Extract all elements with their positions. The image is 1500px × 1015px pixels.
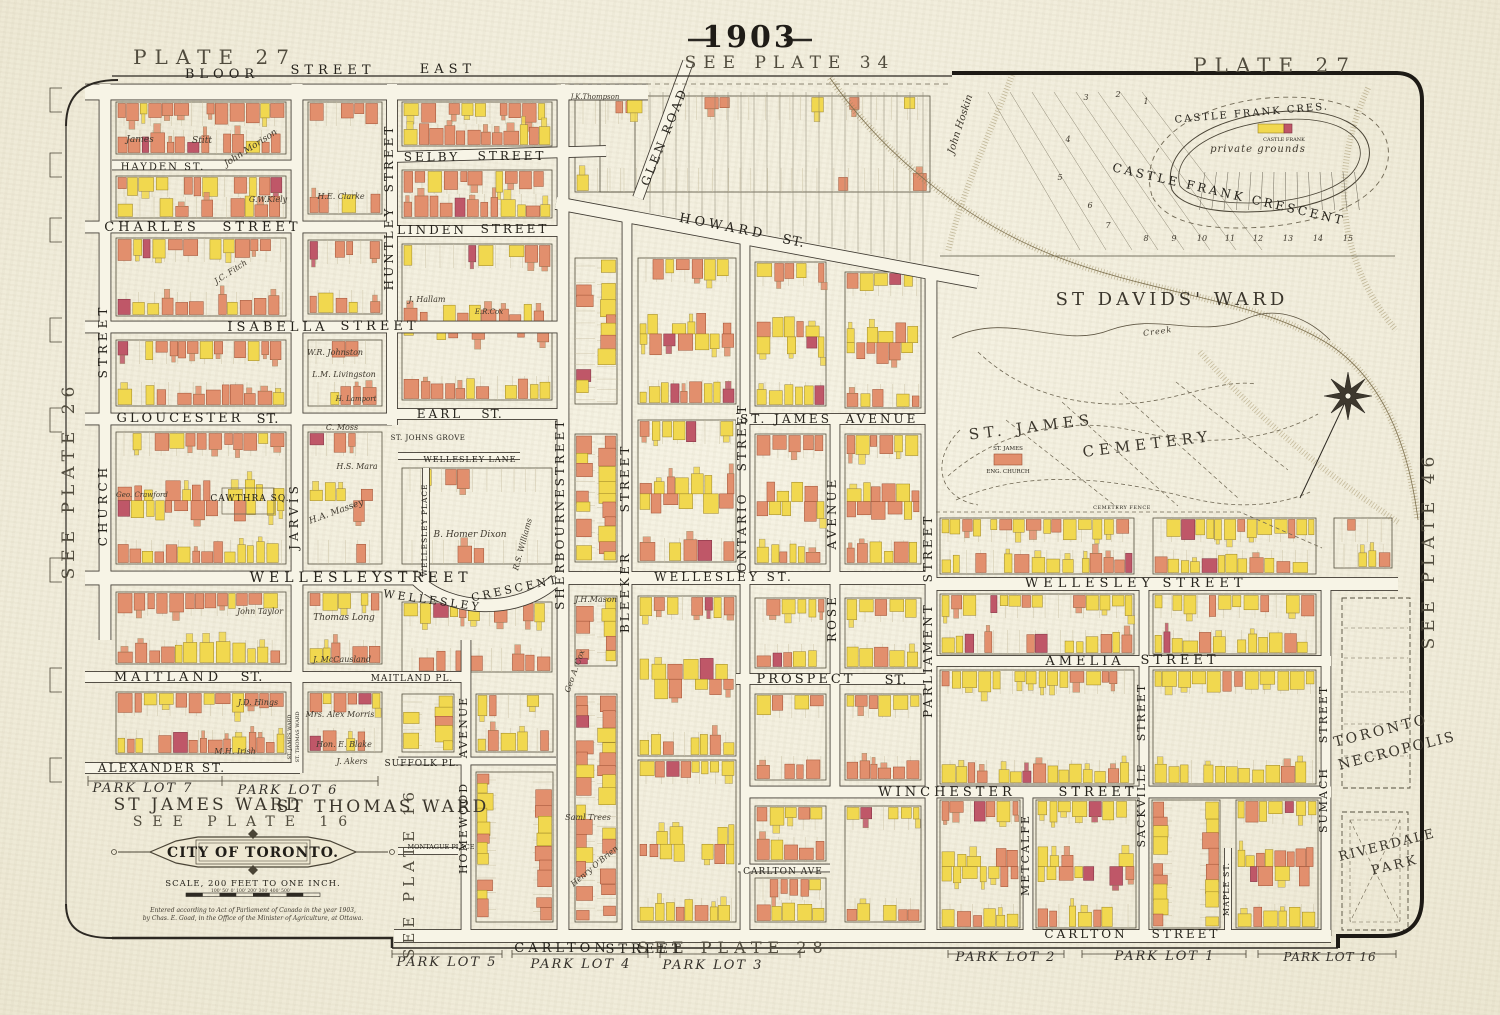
building	[446, 384, 455, 399]
building-extension	[1051, 822, 1054, 827]
building	[894, 696, 908, 710]
map-label: BLEEKER	[618, 551, 632, 633]
building-extension	[712, 349, 717, 357]
building	[1072, 802, 1086, 817]
building	[189, 302, 203, 315]
building-extension	[494, 126, 499, 133]
building-extension	[1073, 682, 1080, 692]
city-block	[1236, 800, 1318, 928]
building	[806, 552, 820, 562]
building	[815, 386, 824, 405]
building	[235, 342, 246, 358]
building-extension	[726, 689, 731, 697]
map-label: EAST	[420, 62, 476, 77]
building	[601, 323, 615, 336]
building	[1154, 802, 1164, 817]
building-extension	[1128, 616, 1135, 624]
building	[957, 911, 970, 926]
building	[695, 334, 709, 350]
building	[539, 127, 550, 145]
building-extension	[407, 122, 414, 130]
building	[801, 880, 809, 897]
building	[192, 485, 200, 501]
building	[1202, 833, 1218, 849]
building	[496, 172, 503, 193]
building	[501, 200, 515, 217]
map-label: CEMETERY FENCE	[1093, 505, 1151, 511]
building-extension	[471, 185, 478, 193]
building	[214, 342, 222, 354]
building	[667, 762, 679, 777]
map-label: 6	[1087, 201, 1092, 210]
building-extension	[881, 763, 887, 768]
building	[230, 385, 243, 405]
building	[200, 738, 206, 752]
building	[1086, 596, 1098, 611]
building	[215, 104, 227, 125]
building	[785, 808, 796, 818]
building	[1154, 817, 1168, 826]
building	[785, 764, 795, 778]
building	[577, 848, 593, 863]
building-extension	[515, 645, 521, 654]
map-label: ST. THOMAS WARD	[295, 711, 301, 762]
scale-bar-segment	[186, 893, 203, 897]
building-extension	[1165, 686, 1172, 694]
building-extension	[135, 255, 139, 261]
building	[1359, 553, 1367, 567]
map-label: STREET	[481, 222, 550, 236]
building	[404, 733, 419, 748]
building-extension	[312, 188, 316, 197]
building	[337, 489, 346, 501]
building	[1026, 520, 1041, 531]
building	[539, 246, 550, 267]
building-extension	[909, 644, 914, 652]
city-block	[308, 240, 382, 314]
building	[189, 740, 197, 752]
building	[860, 600, 874, 612]
building	[167, 142, 174, 152]
building-extension	[1280, 907, 1284, 911]
map-label: Mrs. Alex Morris	[305, 710, 375, 719]
map-label: J.D. Hings	[236, 698, 278, 707]
building	[1004, 554, 1012, 573]
building	[767, 482, 775, 502]
building-extension	[451, 114, 456, 121]
map-label: EARL	[417, 407, 463, 421]
building	[476, 387, 488, 399]
building	[1289, 907, 1300, 926]
building	[785, 264, 794, 279]
building-extension	[809, 321, 816, 326]
building-extension	[657, 894, 661, 904]
building	[1095, 771, 1106, 782]
building	[1202, 559, 1217, 573]
map-label: GLOUCESTER	[117, 411, 244, 426]
building	[310, 104, 323, 121]
building-extension	[239, 538, 243, 544]
building	[782, 600, 795, 614]
building	[664, 334, 675, 346]
building	[1084, 867, 1094, 881]
building	[478, 696, 487, 716]
building	[909, 542, 916, 562]
building-extension	[694, 467, 700, 474]
building	[118, 501, 130, 517]
building-extension	[469, 195, 475, 200]
creek	[952, 313, 1330, 340]
building	[1275, 851, 1286, 867]
building	[880, 436, 893, 454]
map-label: STREET	[222, 220, 301, 235]
map-label: SELBY	[404, 150, 460, 164]
building	[357, 544, 366, 562]
building	[1115, 560, 1125, 573]
building	[1126, 553, 1132, 572]
building	[526, 655, 534, 670]
building-extension	[1216, 631, 1222, 637]
building	[847, 329, 854, 343]
building	[962, 867, 977, 879]
building-extension	[965, 531, 970, 538]
building	[804, 386, 813, 405]
map-label: ST DAVIDS' WARD	[1056, 289, 1289, 310]
building-extension	[1065, 553, 1070, 559]
building	[481, 132, 490, 144]
building	[601, 335, 616, 350]
building-extension	[212, 449, 218, 456]
border-bottom-left	[112, 938, 392, 948]
building	[782, 502, 791, 516]
building-extension	[275, 388, 281, 392]
building	[1035, 634, 1047, 652]
building-extension	[188, 446, 193, 453]
building-extension	[312, 481, 318, 490]
building	[695, 679, 707, 689]
building	[1247, 520, 1256, 538]
city-block	[575, 694, 617, 922]
building	[347, 242, 353, 255]
building	[1013, 802, 1018, 816]
building	[1113, 632, 1120, 652]
building-extension	[991, 878, 996, 884]
map-label: PLATE 27	[1193, 53, 1357, 77]
map-label: by Chas. E. Goad, in the Office of the M…	[143, 915, 364, 922]
map-label: ST. JAMES	[993, 446, 1023, 452]
building	[695, 905, 708, 920]
building	[437, 651, 445, 670]
building	[767, 600, 780, 616]
building	[175, 501, 188, 511]
building-extension	[173, 612, 180, 620]
map-label: ST.	[481, 407, 502, 421]
building	[785, 845, 798, 860]
building	[942, 910, 954, 927]
building	[803, 436, 813, 450]
building	[652, 664, 666, 679]
building	[603, 828, 616, 840]
castle-frank-house	[1258, 124, 1284, 133]
building-extension	[375, 708, 381, 717]
map-label: CAWTHRA SQ.	[210, 494, 289, 504]
map-label: H.E. Clarke	[316, 192, 365, 201]
building	[599, 788, 616, 805]
building	[722, 762, 734, 776]
building	[271, 178, 282, 193]
map-label: PLATE 27	[133, 45, 297, 69]
building	[234, 178, 246, 194]
building-extension	[142, 191, 149, 198]
building-extension	[258, 732, 262, 738]
building	[1033, 764, 1045, 783]
building	[1101, 634, 1112, 652]
border-bottom-left-curl	[66, 904, 112, 938]
building	[599, 526, 616, 542]
building	[655, 679, 668, 699]
building-extension	[246, 388, 251, 394]
building	[1102, 672, 1109, 683]
building	[1275, 867, 1289, 881]
building	[539, 860, 551, 870]
building-extension	[520, 726, 525, 732]
building-extension	[955, 883, 959, 889]
building	[770, 880, 778, 897]
building-extension	[1124, 626, 1130, 635]
building	[654, 482, 664, 494]
building	[520, 125, 528, 145]
building	[481, 202, 488, 216]
building	[963, 596, 976, 616]
building	[577, 834, 587, 849]
city-block	[402, 694, 454, 752]
building	[1299, 867, 1309, 886]
building	[577, 463, 593, 476]
building-extension	[508, 183, 514, 189]
building	[155, 552, 164, 563]
building-extension	[848, 322, 852, 329]
building-extension	[712, 725, 717, 735]
building-extension	[1284, 759, 1291, 766]
building	[784, 317, 794, 337]
building	[1190, 562, 1199, 573]
building	[195, 594, 203, 609]
building-extension	[682, 384, 685, 392]
building-extension	[656, 610, 661, 616]
building-extension	[1006, 549, 1010, 554]
building	[956, 636, 963, 652]
building	[1103, 802, 1114, 820]
building-extension	[943, 616, 947, 623]
building	[1112, 596, 1124, 607]
building	[1032, 596, 1042, 608]
building	[710, 334, 719, 349]
building-extension	[333, 634, 337, 643]
building	[1075, 867, 1083, 878]
building-extension	[970, 847, 977, 857]
building	[692, 598, 703, 616]
building	[1265, 850, 1273, 867]
building	[798, 600, 806, 614]
building-extension	[848, 543, 852, 548]
building	[509, 246, 524, 257]
building	[816, 841, 824, 859]
building	[518, 732, 528, 751]
building	[847, 436, 855, 454]
building	[1206, 802, 1219, 819]
city-block	[575, 258, 617, 404]
building	[1050, 911, 1057, 926]
building-extension	[666, 346, 672, 354]
building	[135, 694, 141, 713]
building	[686, 422, 695, 442]
building	[669, 679, 682, 698]
building-extension	[721, 897, 727, 906]
building	[501, 733, 515, 750]
building-extension	[338, 482, 342, 488]
building	[419, 124, 428, 145]
crescent-lot-line	[1355, 172, 1360, 210]
building-extension	[981, 882, 984, 890]
building	[773, 436, 786, 450]
map-label: 1	[1143, 97, 1148, 106]
building-extension	[1249, 538, 1254, 543]
building	[1013, 520, 1024, 533]
building-extension	[1029, 530, 1036, 539]
map-label: STREET	[735, 403, 749, 472]
building-extension	[712, 902, 716, 907]
building	[705, 475, 712, 493]
building	[1126, 867, 1134, 880]
building	[162, 298, 173, 314]
building	[769, 502, 781, 515]
building	[650, 334, 662, 355]
map-label: STREET	[1135, 683, 1148, 742]
building	[770, 808, 784, 826]
building	[651, 494, 661, 513]
city-block	[845, 694, 921, 780]
building-extension	[1085, 764, 1090, 770]
building	[603, 906, 615, 916]
building-extension	[155, 258, 161, 263]
building	[146, 342, 153, 360]
building	[600, 300, 615, 317]
building	[1250, 867, 1257, 882]
building	[478, 890, 488, 900]
building	[1168, 559, 1179, 572]
building	[718, 905, 729, 920]
building-extension	[943, 820, 946, 824]
building-extension	[216, 354, 220, 359]
building	[847, 274, 858, 289]
building	[175, 137, 184, 153]
building	[1050, 856, 1058, 867]
building	[251, 240, 258, 251]
building	[1261, 596, 1269, 612]
building-extension	[356, 521, 361, 525]
building	[1248, 634, 1256, 653]
building-extension	[537, 622, 542, 630]
building	[1224, 520, 1235, 540]
building-extension	[1036, 758, 1042, 764]
building-extension	[202, 731, 205, 739]
building	[1205, 880, 1218, 894]
building-extension	[1186, 614, 1192, 621]
building	[1070, 672, 1084, 683]
building	[847, 548, 854, 562]
building-extension	[986, 625, 990, 631]
map-label: CARLTON AVE	[743, 867, 823, 877]
building	[244, 434, 257, 451]
building	[640, 483, 652, 493]
building	[757, 656, 771, 667]
building	[325, 483, 335, 501]
building	[847, 393, 858, 406]
building	[847, 808, 859, 820]
building	[785, 385, 793, 405]
building	[334, 434, 346, 453]
building	[807, 337, 817, 348]
building	[860, 649, 873, 667]
building-extension	[1084, 551, 1087, 558]
building	[692, 260, 703, 279]
building	[606, 636, 615, 650]
building	[534, 172, 544, 187]
building	[666, 260, 674, 273]
building	[789, 436, 800, 452]
building	[757, 337, 770, 354]
map-label: STREET	[96, 304, 110, 379]
building-extension	[226, 253, 231, 263]
building	[214, 542, 223, 563]
building	[906, 436, 918, 456]
building-extension	[820, 612, 823, 620]
building-extension	[272, 360, 277, 366]
building-extension	[219, 632, 226, 641]
building	[1379, 553, 1390, 567]
map-label: ST.	[241, 670, 264, 685]
building-extension	[769, 615, 776, 619]
building	[875, 600, 887, 616]
building-extension	[279, 728, 283, 734]
map-label: STREET	[340, 319, 419, 334]
building-extension	[979, 764, 984, 771]
building-extension	[135, 450, 139, 455]
crescent-lot-line	[1332, 172, 1335, 210]
building-extension	[542, 266, 548, 271]
building	[757, 389, 766, 404]
building-extension	[1239, 841, 1242, 850]
building	[724, 598, 734, 615]
ravine-4	[1200, 352, 1398, 522]
building-extension	[694, 615, 700, 620]
building-extension	[869, 319, 874, 327]
building	[118, 544, 128, 562]
building	[577, 295, 594, 307]
building	[667, 598, 678, 615]
building	[505, 172, 517, 184]
building	[430, 128, 443, 144]
building	[1238, 802, 1244, 818]
building	[1218, 555, 1224, 572]
map-label: AVENUE	[457, 696, 470, 759]
building	[967, 856, 981, 866]
building	[1155, 672, 1161, 687]
map-label: C. Moss	[326, 423, 358, 432]
compass-hub	[1345, 393, 1351, 399]
building-extension	[220, 606, 225, 610]
map-label: Stitt	[192, 136, 212, 146]
